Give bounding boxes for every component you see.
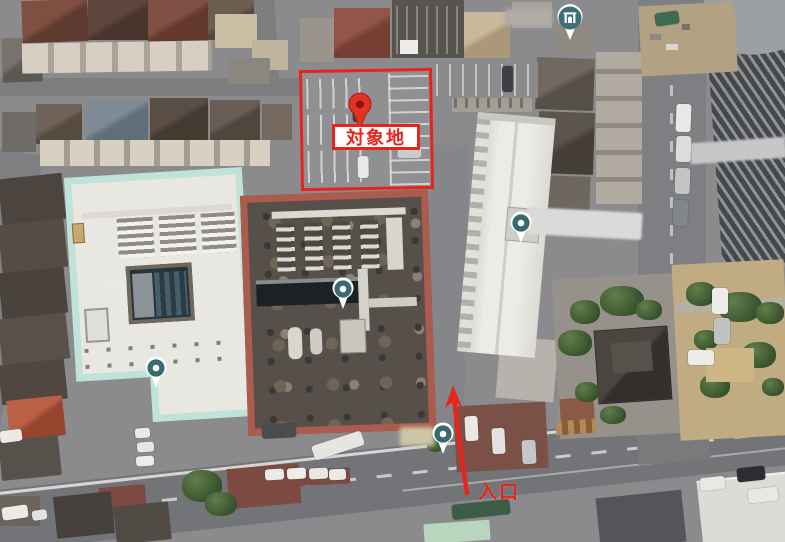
rooftop-ac-units xyxy=(200,212,236,254)
roof-grey xyxy=(493,516,555,542)
house-roof xyxy=(210,100,260,140)
car-silver xyxy=(521,440,536,465)
rooftop-tower xyxy=(386,217,404,270)
tree xyxy=(570,300,600,324)
house-roof xyxy=(0,267,68,320)
apartment-block xyxy=(392,0,464,58)
van-white xyxy=(309,468,329,480)
shrine-icon xyxy=(555,4,585,42)
car-white xyxy=(31,509,47,521)
entrance-arrow-icon xyxy=(443,383,477,498)
car-grey xyxy=(262,423,297,439)
car-grey xyxy=(673,200,689,227)
van-white xyxy=(329,469,347,481)
house-roof-red xyxy=(334,8,390,58)
rooftop-box xyxy=(400,40,418,54)
house-walls xyxy=(22,40,212,73)
courtyard-slot xyxy=(256,277,359,307)
house-roof xyxy=(2,112,36,152)
tree xyxy=(558,330,592,356)
building-dark-slab xyxy=(596,490,687,542)
house-roof xyxy=(464,12,510,58)
house-roof-blue xyxy=(86,100,148,142)
house-roof xyxy=(148,0,208,42)
blurred-sign xyxy=(505,9,552,26)
rooftop-ac-units xyxy=(159,214,197,256)
house-roof xyxy=(535,57,595,111)
van-white xyxy=(137,441,155,452)
house-roof xyxy=(228,58,270,84)
house-roof xyxy=(150,98,208,140)
tree xyxy=(600,406,626,424)
car-white xyxy=(699,476,725,492)
rooftop-box xyxy=(100,274,127,289)
shed-roof xyxy=(556,419,597,436)
aerial-map[interactable]: 対象地 入口 xyxy=(0,0,785,542)
car-silver xyxy=(675,168,691,195)
courtyard-skylight xyxy=(126,262,195,324)
house-roof xyxy=(21,0,88,43)
site-label: 対象地 xyxy=(332,124,420,150)
house-roof xyxy=(215,14,257,48)
rooftop-tank xyxy=(288,327,303,359)
house-roof xyxy=(262,104,292,140)
car-white xyxy=(357,156,368,178)
rooftop-box xyxy=(84,308,110,343)
rooftop-box xyxy=(339,319,366,354)
car-white xyxy=(676,136,692,163)
chimney xyxy=(72,223,85,244)
tree xyxy=(575,382,599,402)
car-silver xyxy=(714,318,730,344)
house-roof xyxy=(0,313,70,366)
house-roof xyxy=(88,0,150,40)
house-walls xyxy=(596,52,642,204)
rooftop-tank xyxy=(310,328,323,354)
car-white xyxy=(676,104,692,133)
blurred-sign xyxy=(400,427,434,446)
house-roof xyxy=(0,219,68,274)
courtyard-floor xyxy=(132,273,155,318)
tree xyxy=(756,302,784,324)
house-walls xyxy=(40,140,270,166)
roof-mint xyxy=(423,520,490,542)
rooftop-fins xyxy=(332,221,352,270)
van-white xyxy=(688,350,714,365)
tree xyxy=(636,300,662,320)
car xyxy=(502,66,513,92)
house-roof xyxy=(36,104,82,144)
poi-marker-shrine[interactable] xyxy=(555,4,585,42)
temple-roof-upper xyxy=(611,341,653,374)
van-white xyxy=(491,428,505,455)
debris xyxy=(650,34,661,40)
debris xyxy=(682,24,690,30)
rooftop-walkway xyxy=(369,297,417,308)
rooftop-fins xyxy=(304,222,324,271)
entrance-label: 入口 xyxy=(478,477,520,504)
rooftop-ac-units xyxy=(117,217,155,259)
tree xyxy=(205,492,237,516)
rooftop-fins xyxy=(360,220,380,269)
van-white xyxy=(136,455,155,466)
building-center xyxy=(240,189,436,435)
car-black xyxy=(736,466,765,483)
parking-stalls-small xyxy=(434,62,538,98)
debris xyxy=(666,44,678,50)
skylight-grid xyxy=(154,271,189,317)
stall-lines xyxy=(436,64,536,96)
house-roof xyxy=(300,18,334,62)
building-left xyxy=(64,167,257,427)
van-white xyxy=(265,469,285,481)
tree xyxy=(762,378,784,396)
rooftop-fins xyxy=(276,223,296,272)
house-roof xyxy=(53,491,115,539)
van-white xyxy=(135,427,151,438)
car-white xyxy=(712,288,728,314)
van-white xyxy=(287,468,307,480)
house-roof xyxy=(113,501,172,542)
house-roof xyxy=(0,173,66,225)
